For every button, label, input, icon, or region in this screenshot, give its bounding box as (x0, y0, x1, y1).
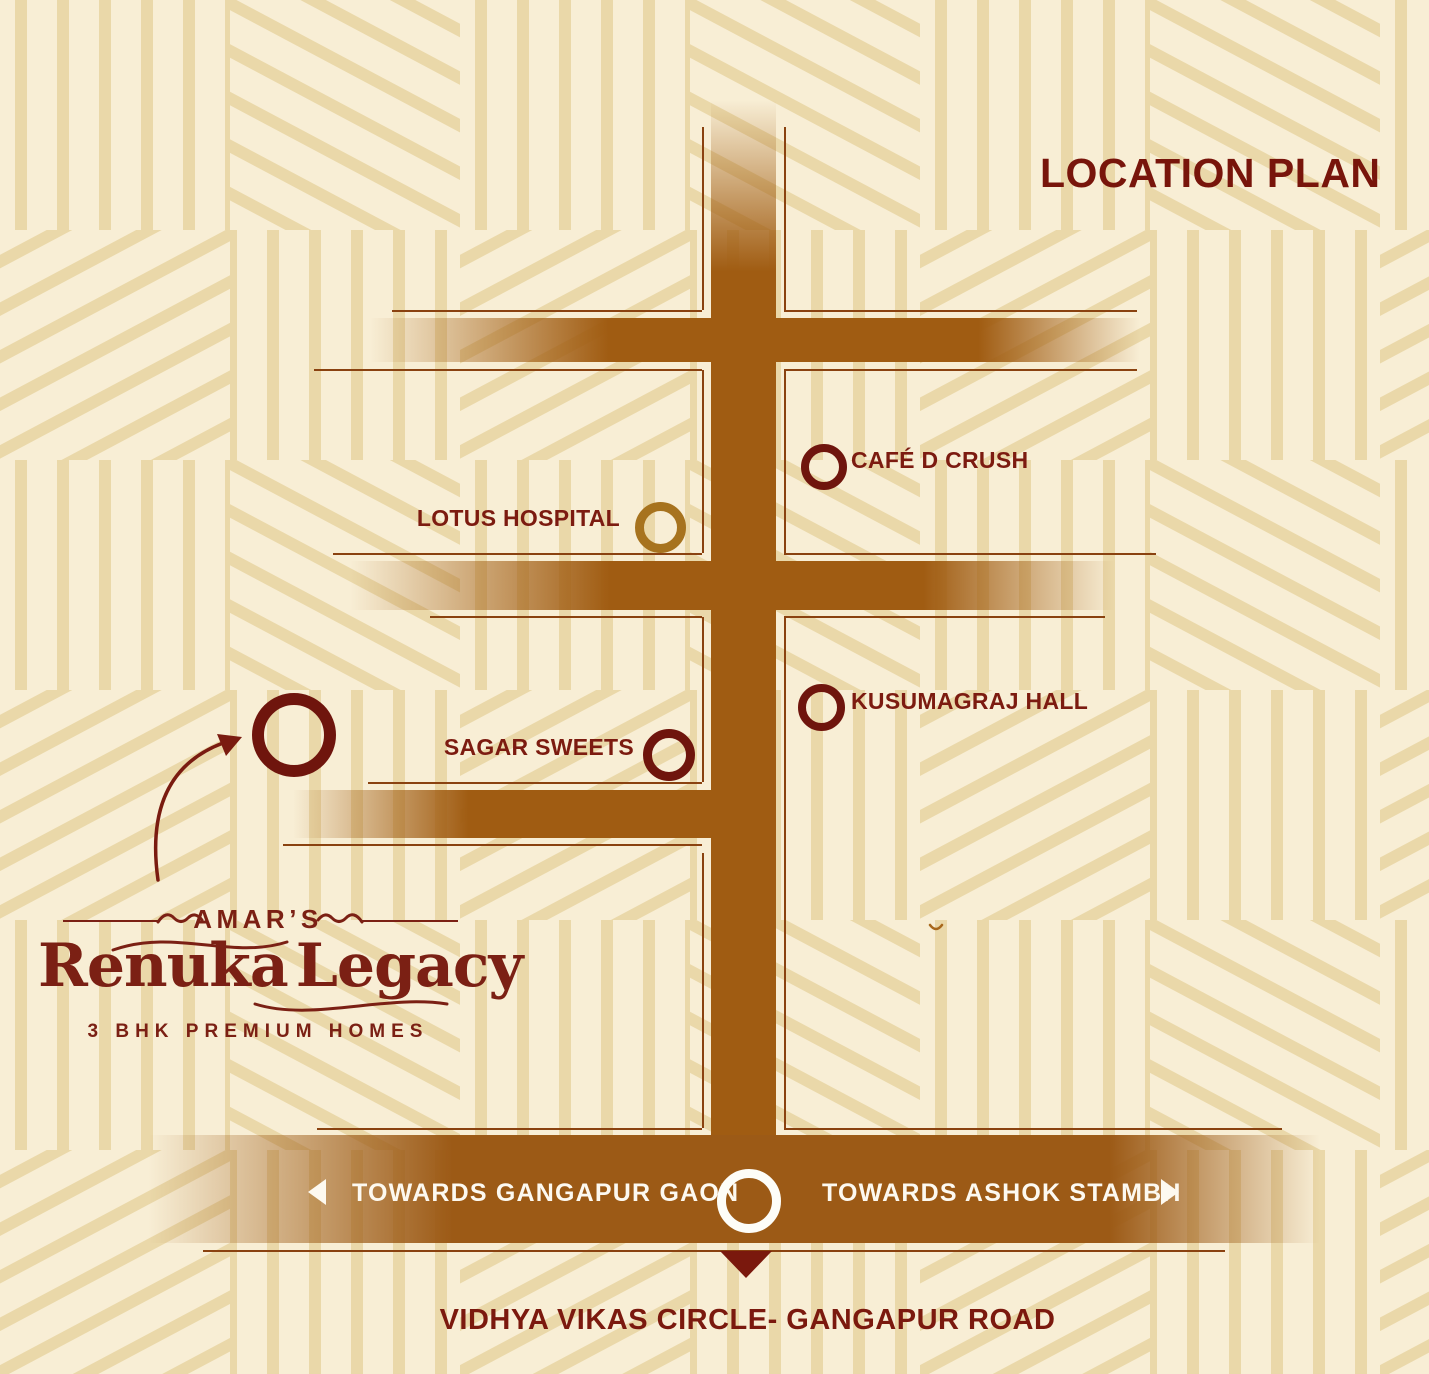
block-outline (702, 127, 704, 310)
block-outline (784, 310, 1137, 312)
cross-road-left-lower (293, 790, 711, 838)
main-vertical-road (711, 100, 776, 1243)
junction-pointer-icon (720, 1251, 772, 1278)
right-direction-arrow-icon (1161, 1179, 1179, 1205)
page-title: LOCATION PLAN (1040, 150, 1381, 197)
brand-prefix: AMAR’S (58, 906, 458, 932)
project-location-arrow-icon (125, 715, 265, 895)
block-outline (392, 310, 702, 312)
junction-label: VIDHYA VIKAS CIRCLE- GANGAPUR ROAD (375, 1306, 1120, 1335)
sagar-sweets-marker-icon (643, 729, 695, 781)
location-plan-map: LOCATION PLAN CAFÉ D CRUSH LOTUS HOSPITA… (0, 0, 1429, 1374)
cross-road-top (370, 318, 1140, 362)
direction-label-gangapur-gaon: TOWARDS GANGAPUR GAON (352, 1181, 739, 1206)
cafe-d-crush-marker-icon (801, 444, 847, 490)
block-outline (333, 553, 702, 555)
block-outline (702, 617, 704, 782)
small-squiggle-mark (928, 923, 944, 933)
block-outline (784, 1128, 1282, 1130)
block-outline (784, 370, 786, 553)
kusumagraj-hall-marker-icon (798, 684, 845, 731)
block-outline (784, 369, 1137, 371)
left-direction-arrow-icon (308, 1179, 326, 1205)
road-bottom-outline (203, 1250, 1225, 1252)
block-outline (314, 369, 702, 371)
brand-name-swash-icon (55, 930, 465, 1020)
cross-road-middle (350, 561, 1115, 610)
block-outline (283, 844, 702, 846)
landmark-label-lotus-hospital: LOTUS HOSPITAL (380, 507, 620, 530)
block-outline (702, 853, 704, 1128)
block-outline (702, 370, 704, 553)
landmark-label-sagar-sweets: SAGAR SWEETS (394, 736, 634, 759)
junction-marker-icon (717, 1169, 781, 1233)
block-outline (368, 782, 702, 784)
landmark-label-cafe-d-crush: CAFÉ D CRUSH (851, 449, 1028, 472)
landmark-label-kusumagraj-hall: KUSUMAGRAJ HALL (851, 690, 1088, 713)
block-outline (784, 616, 1105, 618)
block-outline (317, 1128, 702, 1130)
lotus-hospital-marker-icon (635, 502, 686, 553)
brand-tagline: 3 BHK PREMIUM HOMES (58, 1022, 458, 1041)
block-outline (784, 127, 786, 310)
block-outline (784, 553, 1156, 555)
block-outline (430, 616, 702, 618)
direction-label-ashok-stambh: TOWARDS ASHOK STAMBH (822, 1181, 1182, 1206)
block-outline (784, 617, 786, 1128)
